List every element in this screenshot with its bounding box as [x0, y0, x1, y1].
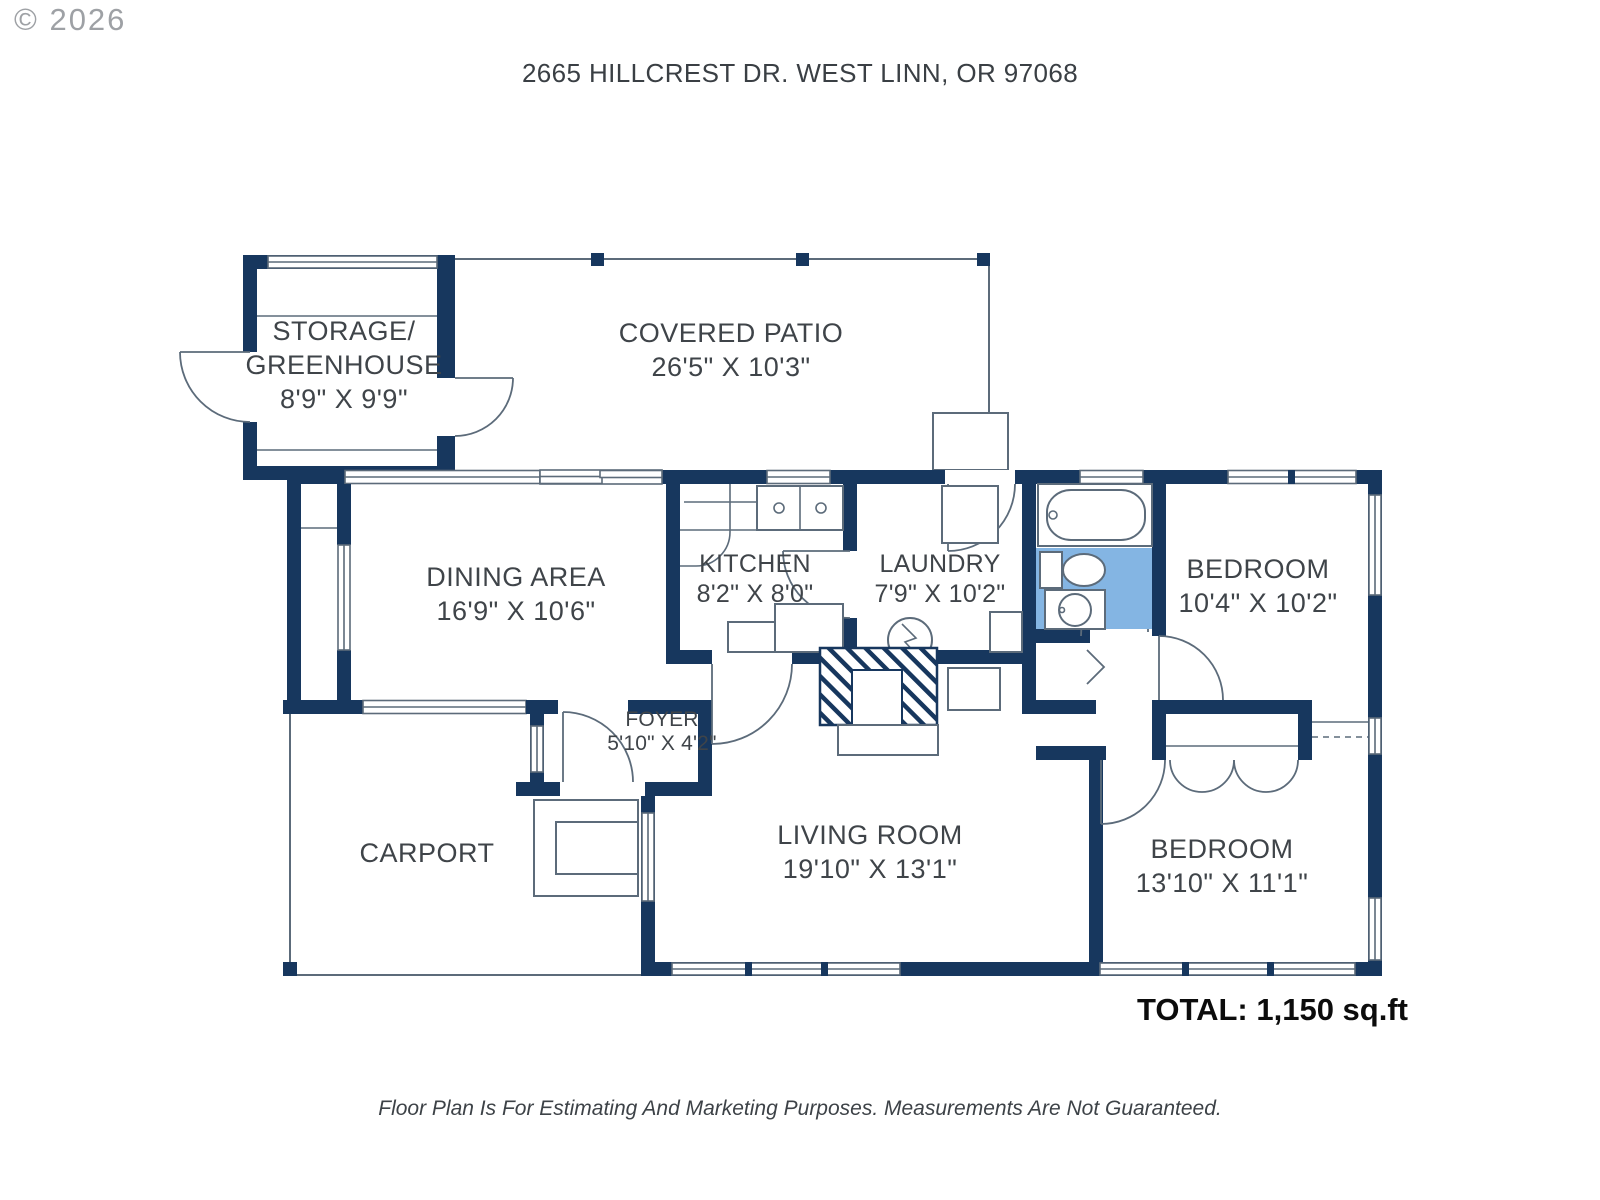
kitchen-label: KITCHEN [699, 550, 811, 578]
bathroom-sink-icon [1045, 590, 1105, 629]
kitchen-living-door [712, 664, 792, 744]
patio-landing [933, 413, 1008, 470]
laundry-cabinet [990, 612, 1022, 652]
bathtub-icon [1038, 484, 1152, 546]
laundry-dims: 7'9" X 10'2" [875, 580, 1006, 608]
storage-label-line1: STORAGE/ [272, 316, 415, 346]
room-labels: STORAGE/ GREENHOUSE 8'9" X 9'9" COVERED … [245, 316, 1337, 898]
kitchen-dims: 8'2" X 8'0" [697, 580, 814, 608]
washer-dryer-icon [942, 486, 998, 543]
range-icon [775, 604, 843, 652]
hall-closet-bifold-door [1087, 650, 1104, 684]
dining-label: DINING AREA [426, 562, 606, 592]
sliding-door [540, 470, 662, 484]
storage-dims: 8'9" X 9'9" [280, 384, 408, 414]
floor-plan-page: © 2026 2665 HILLCREST DR. WEST LINN, OR … [0, 0, 1600, 1200]
dining-bay-wall [287, 484, 351, 714]
bedroom2-dims: 13'10" X 11'1" [1136, 868, 1309, 898]
bedroom1-label: BEDROOM [1186, 554, 1329, 584]
bathroom [1036, 484, 1152, 629]
kitchen-island [728, 622, 775, 652]
laundry-label: LAUNDRY [879, 550, 1000, 578]
fireplace-icon [820, 648, 938, 755]
toilet-icon [1040, 552, 1105, 588]
disclaimer-text: Floor Plan Is For Estimating And Marketi… [0, 1097, 1600, 1121]
kitchen-sink-icon [757, 486, 843, 530]
patio-label: COVERED PATIO [619, 318, 844, 348]
storage-label-line2: GREENHOUSE [245, 350, 442, 380]
bedroom2-door [1101, 760, 1165, 824]
bedroom1-dims: 10'4" X 10'2" [1178, 588, 1337, 618]
entry-steps [534, 800, 638, 896]
living-dims: 19'10" X 13'1" [783, 854, 958, 884]
dining-dims: 16'9" X 10'6" [436, 596, 595, 626]
foyer-label: FOYER [625, 708, 698, 731]
total-area-label: TOTAL: 1,150 sq.ft [1137, 992, 1408, 1028]
bedroom2-label: BEDROOM [1150, 834, 1293, 864]
living-cabinet [948, 668, 1000, 710]
storage-patio-door [455, 378, 513, 436]
foyer-dims: 5'10" X 4'2" [607, 732, 716, 755]
living-label: LIVING ROOM [777, 820, 963, 850]
bedroom2-closet-bifold-doors [1166, 746, 1298, 792]
storage-exterior-door [180, 352, 250, 422]
reach-in-closet-lines [1312, 722, 1368, 737]
bedroom1-door [1159, 636, 1223, 700]
carport-label: CARPORT [359, 838, 494, 868]
patio-dims: 26'5" X 10'3" [651, 352, 810, 382]
